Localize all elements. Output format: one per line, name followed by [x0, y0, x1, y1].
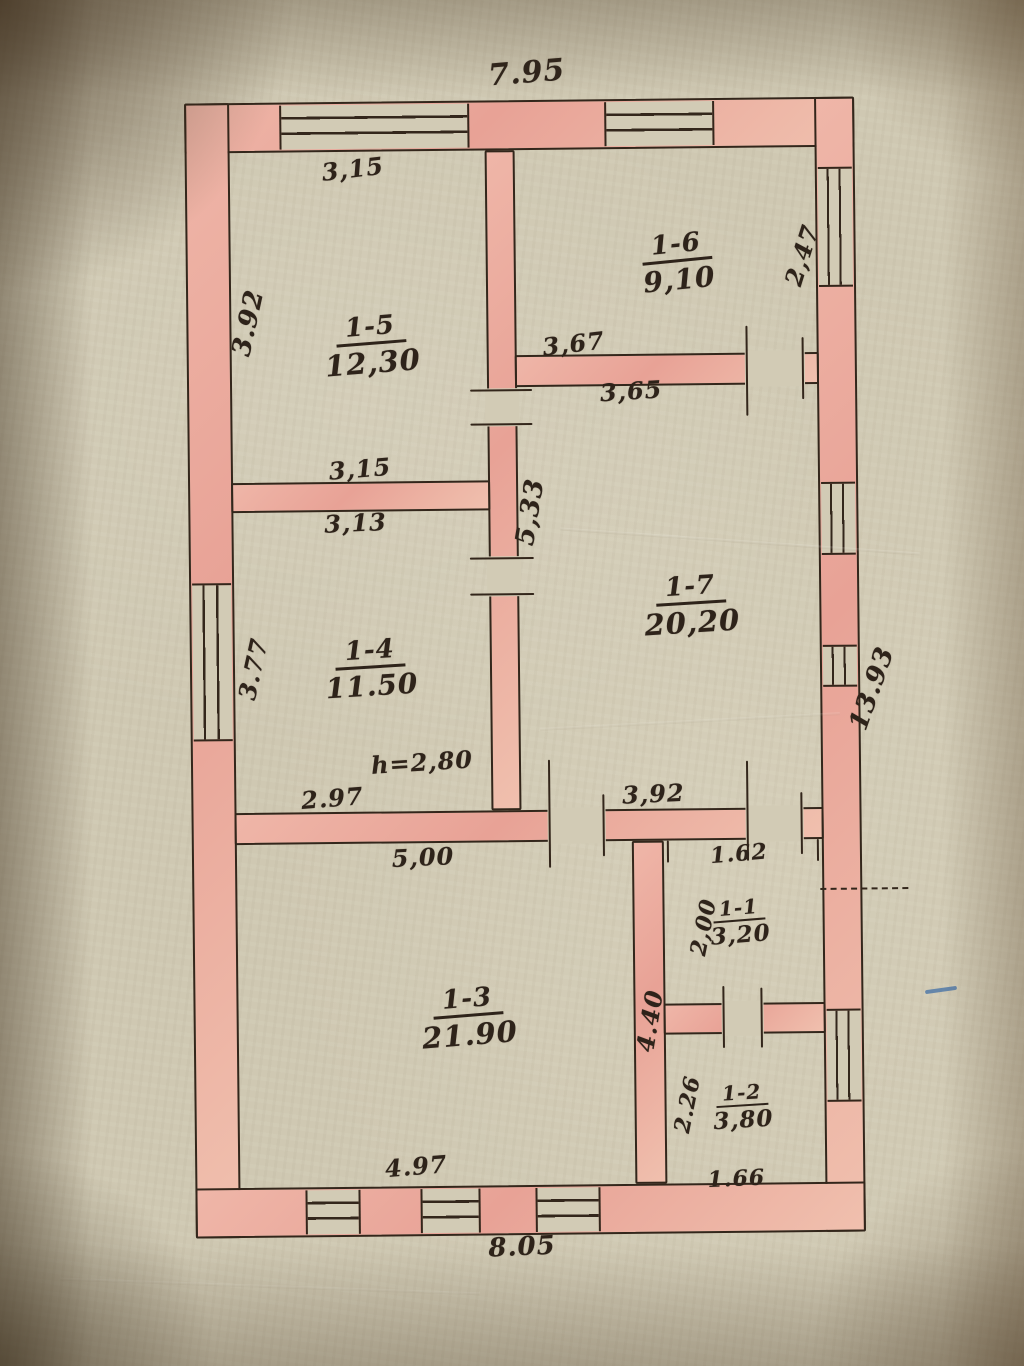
window-right-room-1-7-lower: [823, 645, 857, 687]
window-right-rooms-1-1-1-2: [827, 1009, 862, 1102]
window-top-left: [279, 104, 469, 150]
dim-top-width: 7.95: [487, 52, 567, 93]
room-label-1-6: 1-6 9,10: [639, 226, 718, 301]
door-tick: [470, 389, 532, 392]
door-1-6-to-1-7: [745, 350, 805, 387]
room-label-1-1: 1-1 3,20: [708, 893, 772, 952]
dimension-tick: [667, 841, 669, 863]
dim-room-1-5-top: 3,15: [320, 151, 385, 187]
door-1-1-to-1-2: [721, 1001, 763, 1036]
door-tick: [470, 423, 532, 426]
window-right-room-1-6: [818, 167, 853, 287]
window-bottom-1: [305, 1190, 360, 1235]
dim-room-1-2-bottom: 1.66: [707, 1165, 766, 1194]
window-left-room-1-4: [192, 583, 233, 741]
dim-left-middle: 3.77: [232, 635, 274, 702]
window-right-room-1-7-upper: [821, 482, 856, 555]
door-1-7-to-1-1: [745, 805, 803, 842]
door-tick: [602, 794, 605, 856]
paper-crease: [60, 1278, 480, 1296]
door-tick: [800, 792, 803, 854]
door-tick: [760, 988, 763, 1048]
room-area-1-5: 12,30: [324, 341, 422, 385]
door-tick: [722, 986, 725, 1048]
room-area-1-2: 3,80: [713, 1105, 775, 1137]
door-1-4-to-1-7: [487, 556, 521, 596]
room-label-1-7: 1-7 20,20: [641, 569, 741, 644]
window-bottom-2: [420, 1189, 480, 1234]
room-number-1-7: 1-7: [654, 571, 726, 607]
door-tick: [470, 593, 534, 596]
floor-plan-drawing: 7.95 3,15 3.92 2,47 3,67 3,65 5,33 3,15 …: [179, 84, 881, 1251]
dim-wall-1-6-below: 3,65: [599, 374, 663, 407]
room-area-1-7: 20,20: [643, 602, 741, 644]
dimension-tick: [817, 839, 819, 861]
dim-room-1-1-top: 1.62: [709, 839, 768, 870]
room-area-1-1: 3,20: [710, 919, 772, 952]
dim-bottom-width: 8.05: [488, 1231, 557, 1264]
room-label-1-2: 1-2 3,80: [711, 1079, 774, 1137]
note-ceiling-height: h=2,80: [370, 744, 474, 779]
room-area-1-3: 21.90: [421, 1013, 519, 1057]
door-1-3-to-1-4: [547, 807, 605, 844]
dim-wall-1-5-below: 3,13: [324, 507, 388, 539]
room-area-1-4: 11.50: [325, 666, 420, 707]
dim-wall-1-7-below: 3,92: [621, 778, 685, 810]
room-label-1-3: 1-3 21.90: [418, 980, 519, 1057]
dim-left-upper: 3.92: [226, 287, 270, 359]
room-number-1-2: 1-2: [715, 1081, 768, 1108]
room-label-1-5: 1-5 12,30: [321, 308, 422, 385]
dim-wall-1-4-above: 2.97: [300, 781, 365, 815]
room-number-1-4: 1-4: [334, 635, 406, 671]
dim-wall-1-5-above: 3,15: [328, 452, 393, 486]
dashed-extension-line: [820, 887, 908, 890]
room-label-1-4: 1-4 11.50: [323, 633, 420, 707]
dim-wall-1-3-above: 5,00: [391, 841, 455, 873]
window-bottom-3: [535, 1187, 600, 1232]
window-top-right: [604, 101, 714, 146]
door-1-5-to-hall: [485, 388, 519, 426]
door-tick: [802, 337, 805, 399]
room-area-1-6: 9,10: [642, 259, 717, 301]
wall-interior-vertical-main: [485, 150, 522, 810]
floor-plan-photo: 7.95 3,15 3.92 2,47 3,67 3,65 5,33 3,15 …: [0, 0, 1024, 1366]
dim-room-1-3-bottom: 4.97: [384, 1149, 449, 1183]
dim-room-1-2-left: 2.26: [669, 1074, 706, 1136]
blue-pen-mark: [925, 986, 957, 994]
door-tick: [470, 557, 534, 560]
